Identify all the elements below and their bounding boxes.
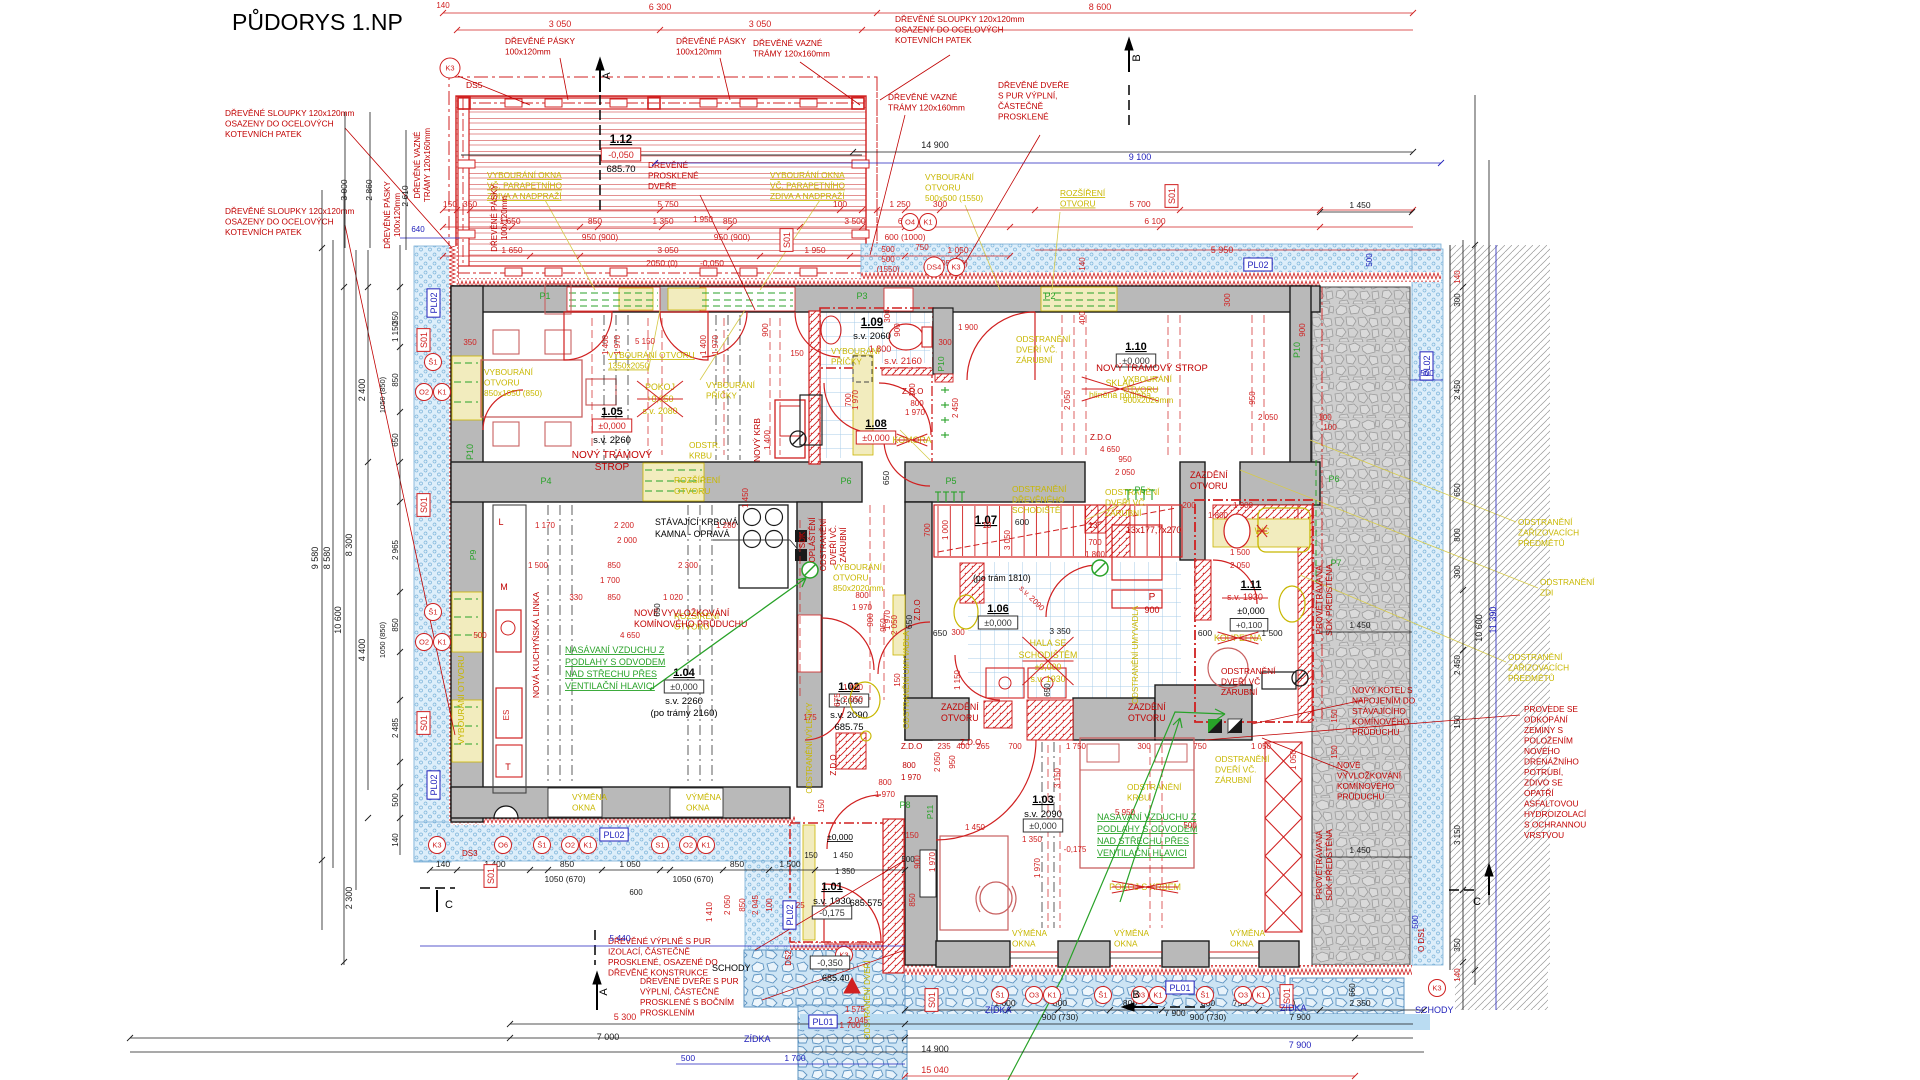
- svg-text:13: 13: [983, 521, 992, 530]
- svg-text:2 050: 2 050: [1115, 468, 1136, 477]
- svg-text:150: 150: [905, 831, 919, 840]
- svg-text:1 970: 1 970: [1033, 857, 1042, 878]
- svg-text:1 000: 1 000: [941, 519, 950, 540]
- svg-text:SCHODIŠTĚ: SCHODIŠTĚ: [1012, 505, 1061, 515]
- svg-text:VÝMĚNA: VÝMĚNA: [686, 792, 722, 802]
- svg-text:DŘEVĚNÉ DVEŘE: DŘEVĚNÉ DVEŘE: [998, 80, 1069, 90]
- svg-text:2 450: 2 450: [951, 397, 960, 418]
- svg-text:-0,175: -0,175: [1064, 845, 1087, 854]
- svg-text:VÝMĚNA: VÝMĚNA: [1114, 928, 1150, 938]
- svg-text:VYBOURÁNÍ OTVORU: VYBOURÁNÍ OTVORU: [456, 656, 466, 745]
- svg-text:2 050: 2 050: [843, 695, 864, 704]
- svg-text:O DS1: O DS1: [1417, 927, 1426, 952]
- svg-text:650: 650: [904, 615, 914, 629]
- svg-text:600: 600: [629, 888, 643, 897]
- svg-text:200: 200: [1182, 501, 1196, 510]
- svg-text:1 400: 1 400: [699, 334, 708, 355]
- svg-text:s.v. 2160: s.v. 2160: [884, 356, 922, 367]
- svg-text:s.v. 1930: s.v. 1930: [1030, 674, 1065, 684]
- svg-text:S PUR VÝPLNÍ,: S PUR VÝPLNÍ,: [998, 91, 1057, 101]
- svg-text:OTVORU: OTVORU: [941, 713, 979, 723]
- svg-text:100x120mm: 100x120mm: [500, 196, 509, 240]
- svg-text:4 650: 4 650: [1100, 445, 1121, 454]
- svg-text:ODSTRANĚNÍ: ODSTRANĚNÍ: [1127, 782, 1182, 792]
- svg-text:IZOLACÍ, ČÁSTEČNĚ: IZOLACÍ, ČÁSTEČNĚ: [608, 947, 691, 957]
- svg-text:NOVÁ KUCHYŇSKÁ LINKA: NOVÁ KUCHYŇSKÁ LINKA: [531, 592, 541, 699]
- svg-text:1 750: 1 750: [1066, 742, 1087, 751]
- svg-text:900x2020mm: 900x2020mm: [1123, 395, 1173, 405]
- svg-text:ČÁSTEČNĚ: ČÁSTEČNĚ: [998, 101, 1044, 111]
- svg-text:Z.D.O: Z.D.O: [829, 754, 838, 775]
- svg-text:850: 850: [738, 898, 747, 912]
- svg-text:1 500: 1 500: [528, 561, 549, 570]
- svg-text:675: 675: [833, 693, 842, 707]
- svg-text:175: 175: [803, 713, 817, 722]
- svg-text:S01: S01: [1282, 988, 1292, 1004]
- svg-text:s.v. 2260: s.v. 2260: [593, 435, 631, 446]
- svg-text:150: 150: [817, 799, 826, 813]
- svg-text:850: 850: [588, 216, 602, 226]
- svg-text:PROVEDE SE: PROVEDE SE: [1524, 704, 1578, 714]
- svg-text:2 045: 2 045: [848, 1016, 869, 1025]
- svg-text:Š1: Š1: [1200, 991, 1209, 1000]
- svg-text:P9: P9: [468, 550, 478, 561]
- svg-text:K1: K1: [1153, 991, 1162, 1000]
- svg-text:KOTEVNÍCH PATEK: KOTEVNÍCH PATEK: [225, 227, 302, 237]
- svg-text:300: 300: [951, 628, 965, 637]
- svg-text:OKNA: OKNA: [572, 803, 596, 813]
- svg-text:1 400: 1 400: [601, 334, 610, 355]
- svg-text:OTVORU: OTVORU: [1128, 713, 1166, 723]
- svg-text:2 350: 2 350: [1349, 998, 1371, 1008]
- svg-text:1 900: 1 900: [958, 323, 979, 332]
- svg-text:K1: K1: [437, 638, 446, 647]
- svg-text:640: 640: [411, 225, 425, 234]
- svg-text:1 970: 1 970: [883, 609, 892, 630]
- svg-text:K3: K3: [432, 841, 441, 850]
- svg-text:1 970: 1 970: [852, 603, 873, 612]
- svg-text:1.08: 1.08: [865, 418, 886, 430]
- svg-text:1 050: 1 050: [1251, 742, 1272, 751]
- svg-text:350: 350: [463, 199, 477, 209]
- svg-text:SCHODY: SCHODY: [712, 963, 751, 973]
- svg-text:850: 850: [730, 859, 744, 869]
- svg-text:PL01: PL01: [1169, 983, 1190, 993]
- svg-text:P10: P10: [1292, 342, 1302, 358]
- svg-text:500: 500: [391, 793, 400, 807]
- svg-text:850: 850: [391, 373, 400, 387]
- svg-text:1 500: 1 500: [779, 859, 801, 869]
- svg-text:1 170: 1 170: [535, 521, 556, 530]
- svg-text:PROSKLENÉ, OSAZENÉ DO: PROSKLENÉ, OSAZENÉ DO: [608, 957, 718, 967]
- svg-text:ZAZDĚNÍ: ZAZDĚNÍ: [1128, 702, 1166, 712]
- svg-text:650: 650: [1043, 683, 1052, 697]
- svg-text:VÝMĚNA: VÝMĚNA: [1230, 928, 1266, 938]
- svg-text:700: 700: [1088, 538, 1102, 547]
- svg-text:685.70: 685.70: [606, 164, 635, 175]
- svg-text:900 (730): 900 (730): [1042, 1012, 1079, 1022]
- svg-text:K3: K3: [445, 64, 454, 73]
- svg-text:POLOŽENÍM: POLOŽENÍM: [1524, 736, 1573, 746]
- svg-text:K1: K1: [701, 841, 710, 850]
- svg-text:1.11: 1.11: [1241, 579, 1262, 591]
- svg-text:DS2: DS2: [784, 950, 793, 966]
- svg-text:TRÁMY 120x160mm: TRÁMY 120x160mm: [753, 49, 830, 59]
- svg-text:11 390: 11 390: [1488, 607, 1498, 634]
- svg-text:1 450: 1 450: [1349, 620, 1371, 630]
- svg-text:PROSKLENÉ: PROSKLENÉ: [998, 112, 1049, 122]
- svg-text:O3: O3: [1029, 991, 1039, 1000]
- svg-text:±0,000: ±0,000: [598, 421, 625, 431]
- svg-text:350: 350: [1453, 938, 1462, 952]
- svg-text:ODSTRANĚNÍ UMYVADLA: ODSTRANĚNÍ UMYVADLA: [1131, 605, 1140, 704]
- svg-text:7 000: 7 000: [597, 1032, 620, 1042]
- svg-text:2 045: 2 045: [751, 894, 760, 915]
- svg-text:1 970: 1 970: [928, 851, 937, 872]
- svg-text:Z.D.O: Z.D.O: [901, 742, 922, 751]
- svg-text:3 050: 3 050: [1003, 529, 1012, 550]
- svg-text:ES: ES: [502, 710, 511, 721]
- svg-text:500: 500: [1365, 253, 1374, 267]
- svg-text:ODSTRANĚNÍ: ODSTRANĚNÍ: [1221, 666, 1276, 676]
- svg-text:S01: S01: [419, 332, 429, 348]
- svg-text:ROZŠÍŘENÍ: ROZŠÍŘENÍ: [674, 475, 721, 485]
- svg-text:1050 (850): 1050 (850): [378, 376, 387, 413]
- svg-text:O2: O2: [683, 841, 693, 850]
- svg-text:DŘEVĚNÉ SLOUPKY 120x120mm: DŘEVĚNÉ SLOUPKY 120x120mm: [225, 206, 355, 216]
- svg-text:DVEŘÍ VČ.: DVEŘÍ VČ.: [1016, 345, 1058, 355]
- svg-text:100x120mm: 100x120mm: [676, 47, 722, 57]
- svg-text:VYBOURÁNÍ: VYBOURÁNÍ: [925, 172, 975, 182]
- svg-text:DS3: DS3: [462, 849, 478, 858]
- svg-text:DŘEVĚNÉ SLOUPKY 120x120mm: DŘEVĚNÉ SLOUPKY 120x120mm: [225, 108, 355, 118]
- svg-text:(1550): (1550): [876, 265, 899, 274]
- svg-text:NOVÝ KRB: NOVÝ KRB: [752, 418, 762, 462]
- svg-text:850: 850: [560, 859, 574, 869]
- svg-text:1 350: 1 350: [1022, 835, 1043, 844]
- svg-text:2 050: 2 050: [723, 894, 732, 915]
- svg-text:2 050: 2 050: [1230, 561, 1251, 570]
- svg-text:PL01: PL01: [812, 1017, 833, 1027]
- svg-text:400: 400: [1078, 311, 1087, 325]
- svg-text:OKNA: OKNA: [1012, 939, 1036, 949]
- svg-text:S01: S01: [927, 992, 937, 1008]
- svg-text:ODSTRANĚNÍ: ODSTRANĚNÍ: [1508, 652, 1563, 662]
- svg-text:350: 350: [463, 338, 477, 347]
- svg-text:NOVÝ KOTEL S: NOVÝ KOTEL S: [1352, 685, 1413, 695]
- svg-text:VÝPLNÍ, ČÁSTEČNĚ: VÝPLNÍ, ČÁSTEČNĚ: [640, 987, 720, 997]
- svg-text:1 500: 1 500: [1261, 628, 1283, 638]
- svg-text:8 580: 8 580: [322, 547, 332, 570]
- svg-text:DŘEVĚNÉ PÁSKY: DŘEVĚNÉ PÁSKY: [490, 184, 499, 252]
- svg-text:s.v. 1930: s.v. 1930: [1227, 592, 1263, 602]
- svg-text:1 970: 1 970: [711, 334, 720, 355]
- svg-text:2 050: 2 050: [1063, 389, 1072, 410]
- svg-text:VYVLOŽKOVÁNÍ: VYVLOŽKOVÁNÍ: [1337, 771, 1402, 781]
- svg-text:9 580: 9 580: [310, 547, 320, 570]
- svg-text:ODSTRANĚNÍ: ODSTRANĚNÍ: [1540, 577, 1595, 587]
- svg-text:1 970: 1 970: [905, 408, 926, 417]
- svg-text:OKNA: OKNA: [1230, 939, 1254, 949]
- svg-text:C: C: [1473, 896, 1481, 908]
- svg-text:100x120mm: 100x120mm: [393, 193, 402, 237]
- svg-text:700: 700: [1008, 742, 1022, 751]
- svg-text:K1: K1: [1047, 991, 1056, 1000]
- svg-text:1.10: 1.10: [1125, 341, 1146, 353]
- svg-text:B: B: [1131, 54, 1143, 61]
- svg-text:4 650: 4 650: [620, 631, 641, 640]
- svg-text:5 150: 5 150: [635, 337, 656, 346]
- svg-text:3 500: 3 500: [844, 216, 866, 226]
- svg-text:500: 500: [1420, 369, 1434, 378]
- svg-text:S1: S1: [655, 841, 664, 850]
- svg-text:ZAZDĚNÍ: ZAZDĚNÍ: [1190, 470, 1228, 480]
- svg-text:500: 500: [681, 1053, 695, 1063]
- svg-text:±0,000: ±0,000: [827, 832, 853, 842]
- svg-text:15 040: 15 040: [921, 1065, 949, 1075]
- svg-text:±0,000: ±0,000: [1029, 821, 1056, 831]
- svg-text:B: B: [1132, 989, 1139, 1001]
- svg-text:s.v. 2060: s.v. 2060: [853, 331, 891, 342]
- svg-text:330: 330: [569, 593, 583, 602]
- svg-text:DVEŘE: DVEŘE: [648, 181, 677, 191]
- svg-text:STROP: STROP: [595, 462, 630, 473]
- svg-text:S01: S01: [419, 497, 429, 513]
- svg-text:150: 150: [443, 199, 457, 209]
- svg-text:1 350: 1 350: [835, 867, 856, 876]
- svg-text:1 970: 1 970: [875, 790, 896, 799]
- svg-text:3 050: 3 050: [657, 245, 679, 255]
- svg-text:HALA SE: HALA SE: [1030, 638, 1067, 648]
- svg-text:±0,000: ±0,000: [984, 618, 1011, 628]
- svg-text:500: 500: [881, 245, 895, 254]
- svg-text:s.v. 2080: s.v. 2080: [642, 406, 677, 416]
- svg-text:3 150: 3 150: [1453, 824, 1462, 845]
- svg-text:5 750: 5 750: [657, 199, 679, 209]
- svg-text:1.01: 1.01: [821, 881, 842, 893]
- svg-text:6 100: 6 100: [1144, 216, 1166, 226]
- svg-text:VÝMĚNA: VÝMĚNA: [572, 792, 608, 802]
- svg-text:NASÁVANÍ VZDUCHU Z: NASÁVANÍ VZDUCHU Z: [565, 645, 665, 655]
- svg-text:OTVORU: OTVORU: [1060, 199, 1096, 209]
- svg-text:600: 600: [1198, 628, 1212, 638]
- svg-text:ODKOPÁNÍ: ODKOPÁNÍ: [1524, 715, 1568, 725]
- svg-text:VYBOURÁNÍ: VYBOURÁNÍ: [484, 367, 534, 377]
- svg-text:DŘEVĚNÉ VAZNÉ: DŘEVĚNÉ VAZNÉ: [888, 92, 958, 102]
- svg-text:265: 265: [976, 742, 990, 751]
- svg-text:ZDI: ZDI: [1540, 588, 1553, 598]
- svg-text:ZÍDKA: ZÍDKA: [744, 1034, 771, 1044]
- svg-text:1.05: 1.05: [601, 406, 622, 418]
- svg-text:s.v. 2090: s.v. 2090: [1024, 809, 1062, 820]
- svg-text:900: 900: [1298, 323, 1307, 337]
- svg-text:ODSTRANĚNÍ UMYVADLA: ODSTRANĚNÍ UMYVADLA: [902, 630, 911, 729]
- svg-text:900: 900: [761, 323, 770, 337]
- svg-text:PŘÍČKY: PŘÍČKY: [831, 357, 862, 367]
- svg-text:1 575: 1 575: [845, 1005, 866, 1014]
- svg-text:1 900: 1 900: [1233, 501, 1254, 510]
- svg-text:±0,000: ±0,000: [670, 682, 697, 692]
- svg-text:PL02: PL02: [429, 292, 439, 313]
- svg-text:KRBU: KRBU: [689, 451, 712, 461]
- svg-text:SDK PŘEDSTĚNA: SDK PŘEDSTĚNA: [1324, 564, 1334, 636]
- svg-text:1050 (850): 1050 (850): [378, 621, 387, 658]
- svg-text:1 500: 1 500: [1230, 548, 1251, 557]
- svg-text:K3: K3: [951, 263, 960, 272]
- svg-text:100x120mm: 100x120mm: [505, 47, 551, 57]
- svg-text:650: 650: [391, 433, 400, 447]
- svg-text:300: 300: [1453, 565, 1462, 579]
- svg-text:DVEŘÍ VČ.: DVEŘÍ VČ.: [1105, 498, 1147, 508]
- svg-text:Z.D.O: Z.D.O: [1090, 433, 1111, 442]
- svg-text:A: A: [598, 988, 610, 996]
- svg-text:700: 700: [923, 523, 932, 537]
- svg-text:OSAZENY DO OCELOVÝCH: OSAZENY DO OCELOVÝCH: [895, 25, 1004, 35]
- svg-text:800: 800: [855, 591, 869, 600]
- svg-text:1 250: 1 250: [889, 199, 911, 209]
- svg-text:300: 300: [883, 309, 892, 323]
- svg-text:TRÁMY 120x160mm: TRÁMY 120x160mm: [888, 103, 965, 113]
- svg-text:OPATŘÍ: OPATŘÍ: [1524, 788, 1554, 798]
- svg-text:950 (900): 950 (900): [714, 232, 751, 242]
- svg-text:VČ. PARAPETNÍHO: VČ. PARAPETNÍHO: [770, 181, 846, 191]
- svg-text:ZÁRUBNÍ: ZÁRUBNÍ: [1215, 775, 1252, 785]
- svg-text:ODSTRANĚNÍ: ODSTRANĚNÍ: [1215, 754, 1270, 764]
- svg-text:HYDROIZOLACÍ: HYDROIZOLACÍ: [1524, 809, 1587, 819]
- svg-text:1 970: 1 970: [851, 389, 860, 410]
- svg-text:PŘEDMĚTŮ: PŘEDMĚTŮ: [1518, 537, 1565, 548]
- svg-text:OTVORU: OTVORU: [925, 183, 961, 193]
- svg-text:3 350: 3 350: [1049, 626, 1071, 636]
- svg-text:PROVĚTRÁVANÁ: PROVĚTRÁVANÁ: [1314, 830, 1324, 900]
- svg-text:ODSTRANĚNÍ: ODSTRANĚNÍ: [1016, 334, 1071, 344]
- svg-text:300: 300: [1453, 293, 1462, 307]
- svg-text:DVEŘÍ VČ.: DVEŘÍ VČ.: [829, 525, 838, 565]
- svg-text:1 050: 1 050: [619, 859, 641, 869]
- svg-text:1 950: 1 950: [804, 245, 826, 255]
- svg-text:1 700: 1 700: [784, 1053, 806, 1063]
- svg-text:150: 150: [804, 851, 818, 860]
- svg-text:PL02: PL02: [603, 830, 624, 840]
- svg-text:SDK: SDK: [798, 531, 807, 548]
- svg-text:500: 500: [1411, 915, 1420, 929]
- svg-text:1 450: 1 450: [833, 851, 854, 860]
- svg-text:PŘÍČKY: PŘÍČKY: [706, 391, 737, 401]
- svg-text:ROZŠÍŘENÍ: ROZŠÍŘENÍ: [1060, 188, 1106, 198]
- svg-text:1 050: 1 050: [947, 245, 969, 255]
- svg-text:685.575: 685.575: [850, 898, 883, 908]
- svg-text:ZÍDKA: ZÍDKA: [1280, 1003, 1307, 1013]
- svg-text:SDK PŘEDSTĚNA: SDK PŘEDSTĚNA: [1324, 829, 1334, 901]
- svg-text:750: 750: [1193, 742, 1207, 751]
- svg-text:OPLÁŠTĚNÍ: OPLÁŠTĚNÍ: [808, 517, 817, 563]
- svg-text:235: 235: [937, 742, 951, 751]
- svg-text:KOTEVNÍCH PATEK: KOTEVNÍCH PATEK: [225, 129, 302, 139]
- svg-text:OSAZENY DO OCELOVÝCH: OSAZENY DO OCELOVÝCH: [225, 119, 334, 129]
- svg-text:OTVORU: OTVORU: [833, 573, 869, 583]
- svg-text:1 150: 1 150: [391, 321, 400, 342]
- svg-text:500: 500: [473, 631, 487, 640]
- svg-text:950 (900): 950 (900): [582, 232, 619, 242]
- svg-text:P6: P6: [1328, 474, 1339, 484]
- svg-text:KOMÍNOVÉHO: KOMÍNOVÉHO: [1337, 781, 1395, 791]
- svg-text:150: 150: [893, 673, 902, 687]
- svg-text:100: 100: [908, 383, 917, 397]
- svg-text:O2: O2: [419, 388, 429, 397]
- svg-text:850: 850: [607, 561, 621, 570]
- svg-text:150: 150: [1330, 745, 1339, 759]
- svg-text:500: 500: [1183, 821, 1197, 830]
- svg-text:POTRUBÍ,: POTRUBÍ,: [1524, 767, 1563, 777]
- svg-text:950: 950: [1118, 455, 1132, 464]
- svg-text:-0,050: -0,050: [608, 150, 634, 160]
- svg-text:OKNA: OKNA: [1114, 939, 1138, 949]
- svg-text:VYBOURÁNÍ: VYBOURÁNÍ: [1123, 374, 1173, 384]
- svg-text:NOVÉ: NOVÉ: [1337, 760, 1361, 770]
- svg-text:950: 950: [948, 755, 957, 769]
- svg-text:2050 (0): 2050 (0): [646, 258, 678, 268]
- svg-text:P4: P4: [540, 476, 551, 486]
- svg-text:ASFALTOVOU: ASFALTOVOU: [1524, 799, 1579, 809]
- svg-text:DŘEVĚNÉ PÁSKY: DŘEVĚNÉ PÁSKY: [505, 36, 576, 46]
- svg-text:NAD STŘECHU PŘES: NAD STŘECHU PŘES: [565, 669, 657, 679]
- svg-text:s.v. 1930: s.v. 1930: [813, 896, 851, 907]
- svg-text:NOVÉ VYVLOŽKOVÁNÍ: NOVÉ VYVLOŽKOVÁNÍ: [634, 608, 730, 618]
- svg-text:300: 300: [933, 199, 947, 209]
- svg-text:ZÁRUBNÍ: ZÁRUBNÍ: [1221, 687, 1258, 697]
- svg-text:5 700: 5 700: [1129, 199, 1151, 209]
- svg-text:2 300: 2 300: [344, 887, 354, 910]
- svg-text:140: 140: [391, 833, 400, 847]
- svg-text:C: C: [445, 899, 453, 911]
- svg-text:800: 800: [878, 778, 892, 787]
- svg-text:100: 100: [765, 898, 774, 912]
- svg-text:1 020: 1 020: [663, 593, 684, 602]
- svg-text:3 000: 3 000: [339, 179, 349, 201]
- svg-text:9 100: 9 100: [1129, 152, 1152, 162]
- svg-text:s.v. 2260: s.v. 2260: [665, 696, 703, 707]
- svg-text:K1: K1: [1256, 991, 1265, 1000]
- svg-text:950: 950: [1248, 391, 1257, 405]
- svg-text:850: 850: [723, 216, 737, 226]
- svg-text:ODSTRANĚNÍ: ODSTRANĚNÍ: [1012, 484, 1067, 494]
- svg-text:P: P: [1149, 592, 1156, 603]
- svg-text:1.04: 1.04: [673, 667, 695, 679]
- svg-text:1050 (670): 1050 (670): [672, 874, 713, 884]
- svg-text:2 300: 2 300: [678, 561, 699, 570]
- svg-text:7 900: 7 900: [1289, 1012, 1311, 1022]
- svg-text:VYBOURÁNÍ: VYBOURÁNÍ: [706, 380, 756, 390]
- svg-text:660: 660: [1348, 983, 1357, 997]
- svg-text:850x1050 (850): 850x1050 (850): [484, 388, 542, 398]
- svg-text:300: 300: [1223, 293, 1232, 307]
- svg-text:P8: P8: [899, 800, 910, 810]
- svg-text:3 050: 3 050: [549, 19, 572, 29]
- svg-text:2 450: 2 450: [1453, 654, 1462, 675]
- svg-text:1 450: 1 450: [965, 823, 986, 832]
- svg-text:±0,000: ±0,000: [862, 433, 889, 443]
- svg-text:685.75: 685.75: [834, 722, 863, 733]
- svg-text:ZAŘIZOVACÍCH: ZAŘIZOVACÍCH: [1518, 528, 1579, 538]
- svg-text:P10: P10: [465, 444, 475, 460]
- svg-text:PL02: PL02: [1247, 260, 1268, 270]
- svg-text:1.09: 1.09: [861, 317, 883, 329]
- svg-text:750: 750: [915, 243, 929, 252]
- svg-text:-0,050: -0,050: [700, 258, 724, 268]
- svg-text:K1: K1: [437, 388, 446, 397]
- svg-text:1.03: 1.03: [1032, 794, 1053, 806]
- svg-text:1 280: 1 280: [716, 521, 737, 530]
